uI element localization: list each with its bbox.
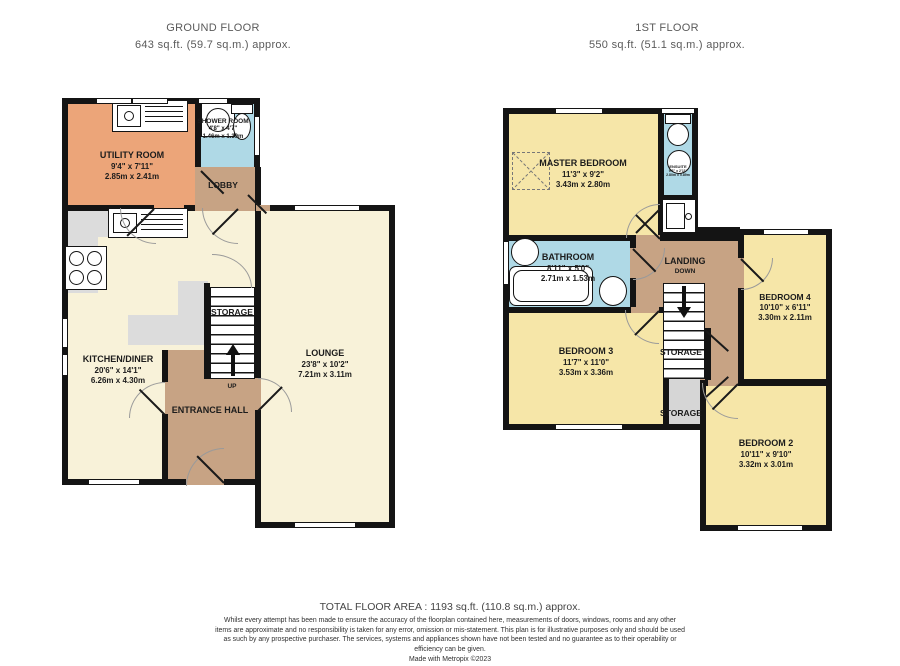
window (763, 229, 809, 235)
window (555, 108, 603, 114)
floorplan-first: MASTER BEDROOM 11'3" x 9'2" 3.43m x 2.80… (503, 108, 832, 531)
storage-label: STORAGE (649, 408, 713, 419)
window (294, 205, 360, 211)
window (294, 522, 356, 528)
floorplan-ground: UTILITY ROOM 9'4" x 7'11" 2.85m x 2.41m … (62, 98, 395, 530)
window (96, 98, 132, 104)
bedroom-4-label: BEDROOM 4 10'10" x 6'11" 3.30m x 2.11m (735, 292, 835, 324)
landing-label: LANDING DOWN (633, 256, 737, 276)
up-label: UP (212, 383, 252, 391)
window (88, 479, 140, 485)
ground-floor-title: GROUND FLOOR (38, 20, 388, 37)
bedroom-2-label: BEDROOM 2 10'11" x 9'10" 3.32m x 3.01m (699, 438, 833, 470)
disclaimer-text: Whilst every attempt has been made to en… (215, 616, 685, 655)
ground-floor-area: 643 sq.ft. (59.7 sq.m.) approx. (38, 37, 388, 54)
master-bedroom-label: MASTER BEDROOM 11'3" x 9'2" 3.43m x 2.80… (513, 158, 653, 190)
entrance-hall-label: ENTRANCE HALL (158, 405, 262, 417)
window (62, 318, 68, 348)
kitchen-counter (128, 315, 208, 345)
up-arrow-icon (226, 344, 240, 376)
wall-segment (696, 227, 740, 241)
footer: TOTAL FLOOR AREA : 1193 sq.ft. (110.8 sq… (0, 601, 900, 663)
first-floor-area: 550 sq.ft. (51.1 sq.m.) approx. (492, 37, 842, 54)
ground-floor-header: GROUND FLOOR 643 sq.ft. (59.7 sq.m.) app… (38, 20, 388, 53)
window (737, 525, 803, 531)
shower-room-label: SHOWER ROOM 4'8" x 4'7" 1.46m x 1.39m (190, 118, 256, 142)
hob-icon (65, 246, 107, 290)
wall-segment (162, 414, 168, 479)
kitchen-diner-label: KITCHEN/DINER 20'6" x 14'1" 6.26m x 4.30… (62, 354, 174, 386)
bedroom-3-label: BEDROOM 3 11'7" x 11'0" 3.53m x 3.36m (513, 346, 659, 378)
lobby-label: LOBBY (192, 180, 254, 191)
metropix-credit: Made with Metropix ©2023 (0, 656, 900, 663)
window (555, 424, 623, 430)
window (132, 98, 168, 104)
window (198, 98, 228, 104)
utility-sink-icon (112, 100, 188, 132)
down-arrow-icon (677, 286, 691, 318)
utility-room-label: UTILITY ROOM 9'4" x 7'11" 2.85m x 2.41m (72, 150, 192, 182)
bathroom-label: BATHROOM 8'11" x 5'0" 2.71m x 1.53m (506, 252, 630, 284)
ensuite-label: ENSUITE 9'2" x 2'11" 2.80m x 0.89m (658, 164, 698, 178)
storage-label: STORAGE (206, 307, 258, 318)
lounge-label: LOUNGE 23'8" x 10'2" 7.21m x 3.11m (265, 348, 385, 380)
first-floor-title: 1ST FLOOR (492, 20, 842, 37)
toilet-icon (665, 114, 691, 146)
first-floor-header: 1ST FLOOR 550 sq.ft. (51.1 sq.m.) approx… (492, 20, 842, 53)
floorplan-page: GROUND FLOOR 643 sq.ft. (59.7 sq.m.) app… (0, 0, 900, 666)
total-floor-area: TOTAL FLOOR AREA : 1193 sq.ft. (110.8 sq… (0, 601, 900, 613)
down-label: DOWN (633, 268, 737, 276)
window (661, 108, 695, 114)
storage-label: STORAGE (649, 347, 713, 358)
cupboard-sink-icon (662, 199, 696, 233)
wall-segment (669, 424, 706, 430)
